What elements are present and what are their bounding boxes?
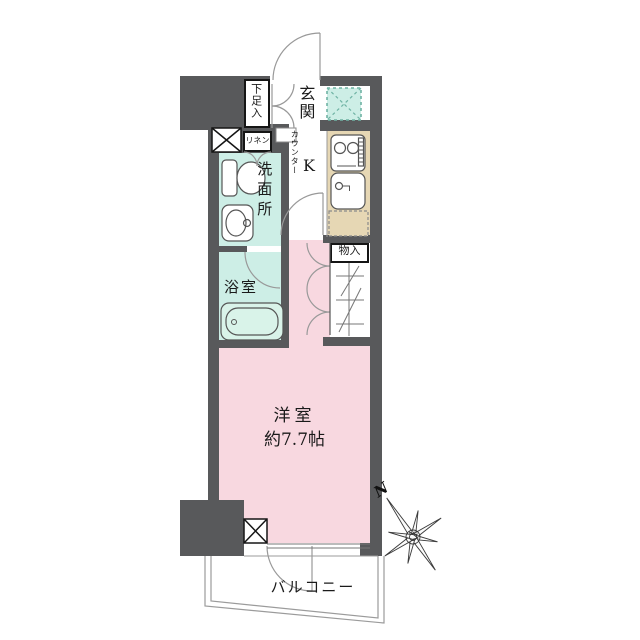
room-label-kitchen: K (303, 157, 315, 175)
wall-right (370, 76, 382, 556)
room-label-entrance: 玄関 (296, 85, 314, 121)
room-label-linen: リネン (243, 136, 272, 145)
western-room-corridor-floor (287, 240, 330, 346)
vent-void-box (327, 88, 361, 120)
kitchen-floor (327, 131, 370, 237)
wall-bottom-left-block (180, 500, 244, 556)
room-label-washroom: 洗面所 (255, 161, 272, 221)
wall-washroom-right (281, 146, 289, 348)
wall-under-kitchen (323, 235, 370, 243)
closet-floor (330, 262, 369, 338)
wall-under-vent-box (320, 120, 370, 131)
wall-closet-bottom (323, 337, 370, 346)
floorplan-canvas: N 玄関 下足入 リネン カウンター K 洗面所 浴室 物入 洋室 約7.7帖 … (0, 0, 640, 640)
balcony-window (267, 544, 370, 548)
room-label-balcony: バルコニー (240, 579, 386, 596)
wall-left (208, 130, 219, 500)
room-label-bathroom: 浴室 (224, 279, 258, 296)
wall-bathroom-bottom (208, 340, 289, 348)
wall-bathroom-top (219, 246, 247, 252)
room-label-storage: 物入 (330, 245, 369, 258)
wall-corner-bottom-right (360, 543, 382, 556)
room-label-western-room-size: 約7.7帖 (219, 431, 370, 451)
room-label-counter: カウンター (290, 130, 299, 175)
room-label-western-room: 洋室 (219, 407, 370, 427)
room-label-shoe-storage: 下足入 (249, 83, 262, 119)
